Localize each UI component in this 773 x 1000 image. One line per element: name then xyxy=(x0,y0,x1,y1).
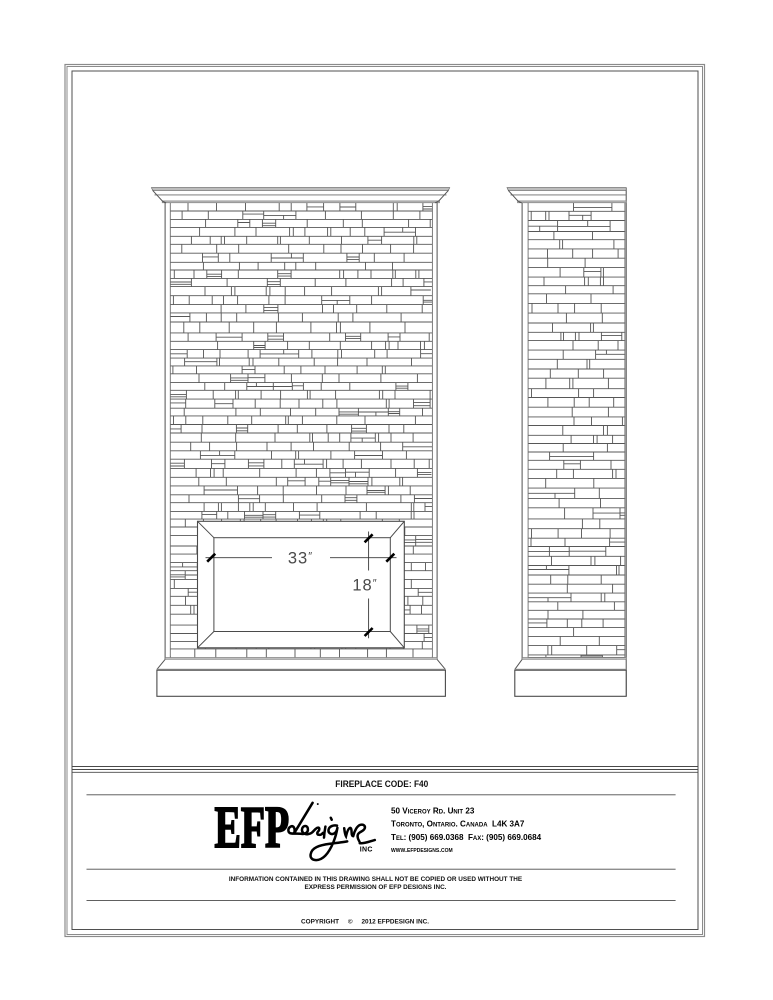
svg-text:50 Viceroy Rd. Unit 23: 50 Viceroy Rd. Unit 23 xyxy=(391,806,475,815)
svg-text:INFORMATION CONTAINED IN THIS: INFORMATION CONTAINED IN THIS DRAWING SH… xyxy=(229,876,523,883)
svg-text:EXPRESS PERMISSION OF EFP DESI: EXPRESS PERMISSION OF EFP DESIGNS INC. xyxy=(305,884,447,891)
svg-text:Toronto, Ontario. Canada L4K: Toronto, Ontario. Canada L4K 3A7 xyxy=(391,819,525,828)
svg-text:INC: INC xyxy=(360,846,373,853)
svg-text:COPYRIGHT © 2012 EFPDE: COPYRIGHT © 2012 EFPDESIGN INC. xyxy=(301,918,429,926)
svg-text:www.efpdesigns.com: www.efpdesigns.com xyxy=(391,847,453,854)
svg-text:EFP: EFP xyxy=(215,794,290,860)
svg-text:Tel: (905) 669.0368 Fax: (905: Tel: (905) 669.0368 Fax: (905) 669.0684 xyxy=(391,833,542,842)
svg-text:FIREPLACE CODE: F40: FIREPLACE CODE: F40 xyxy=(335,779,428,789)
